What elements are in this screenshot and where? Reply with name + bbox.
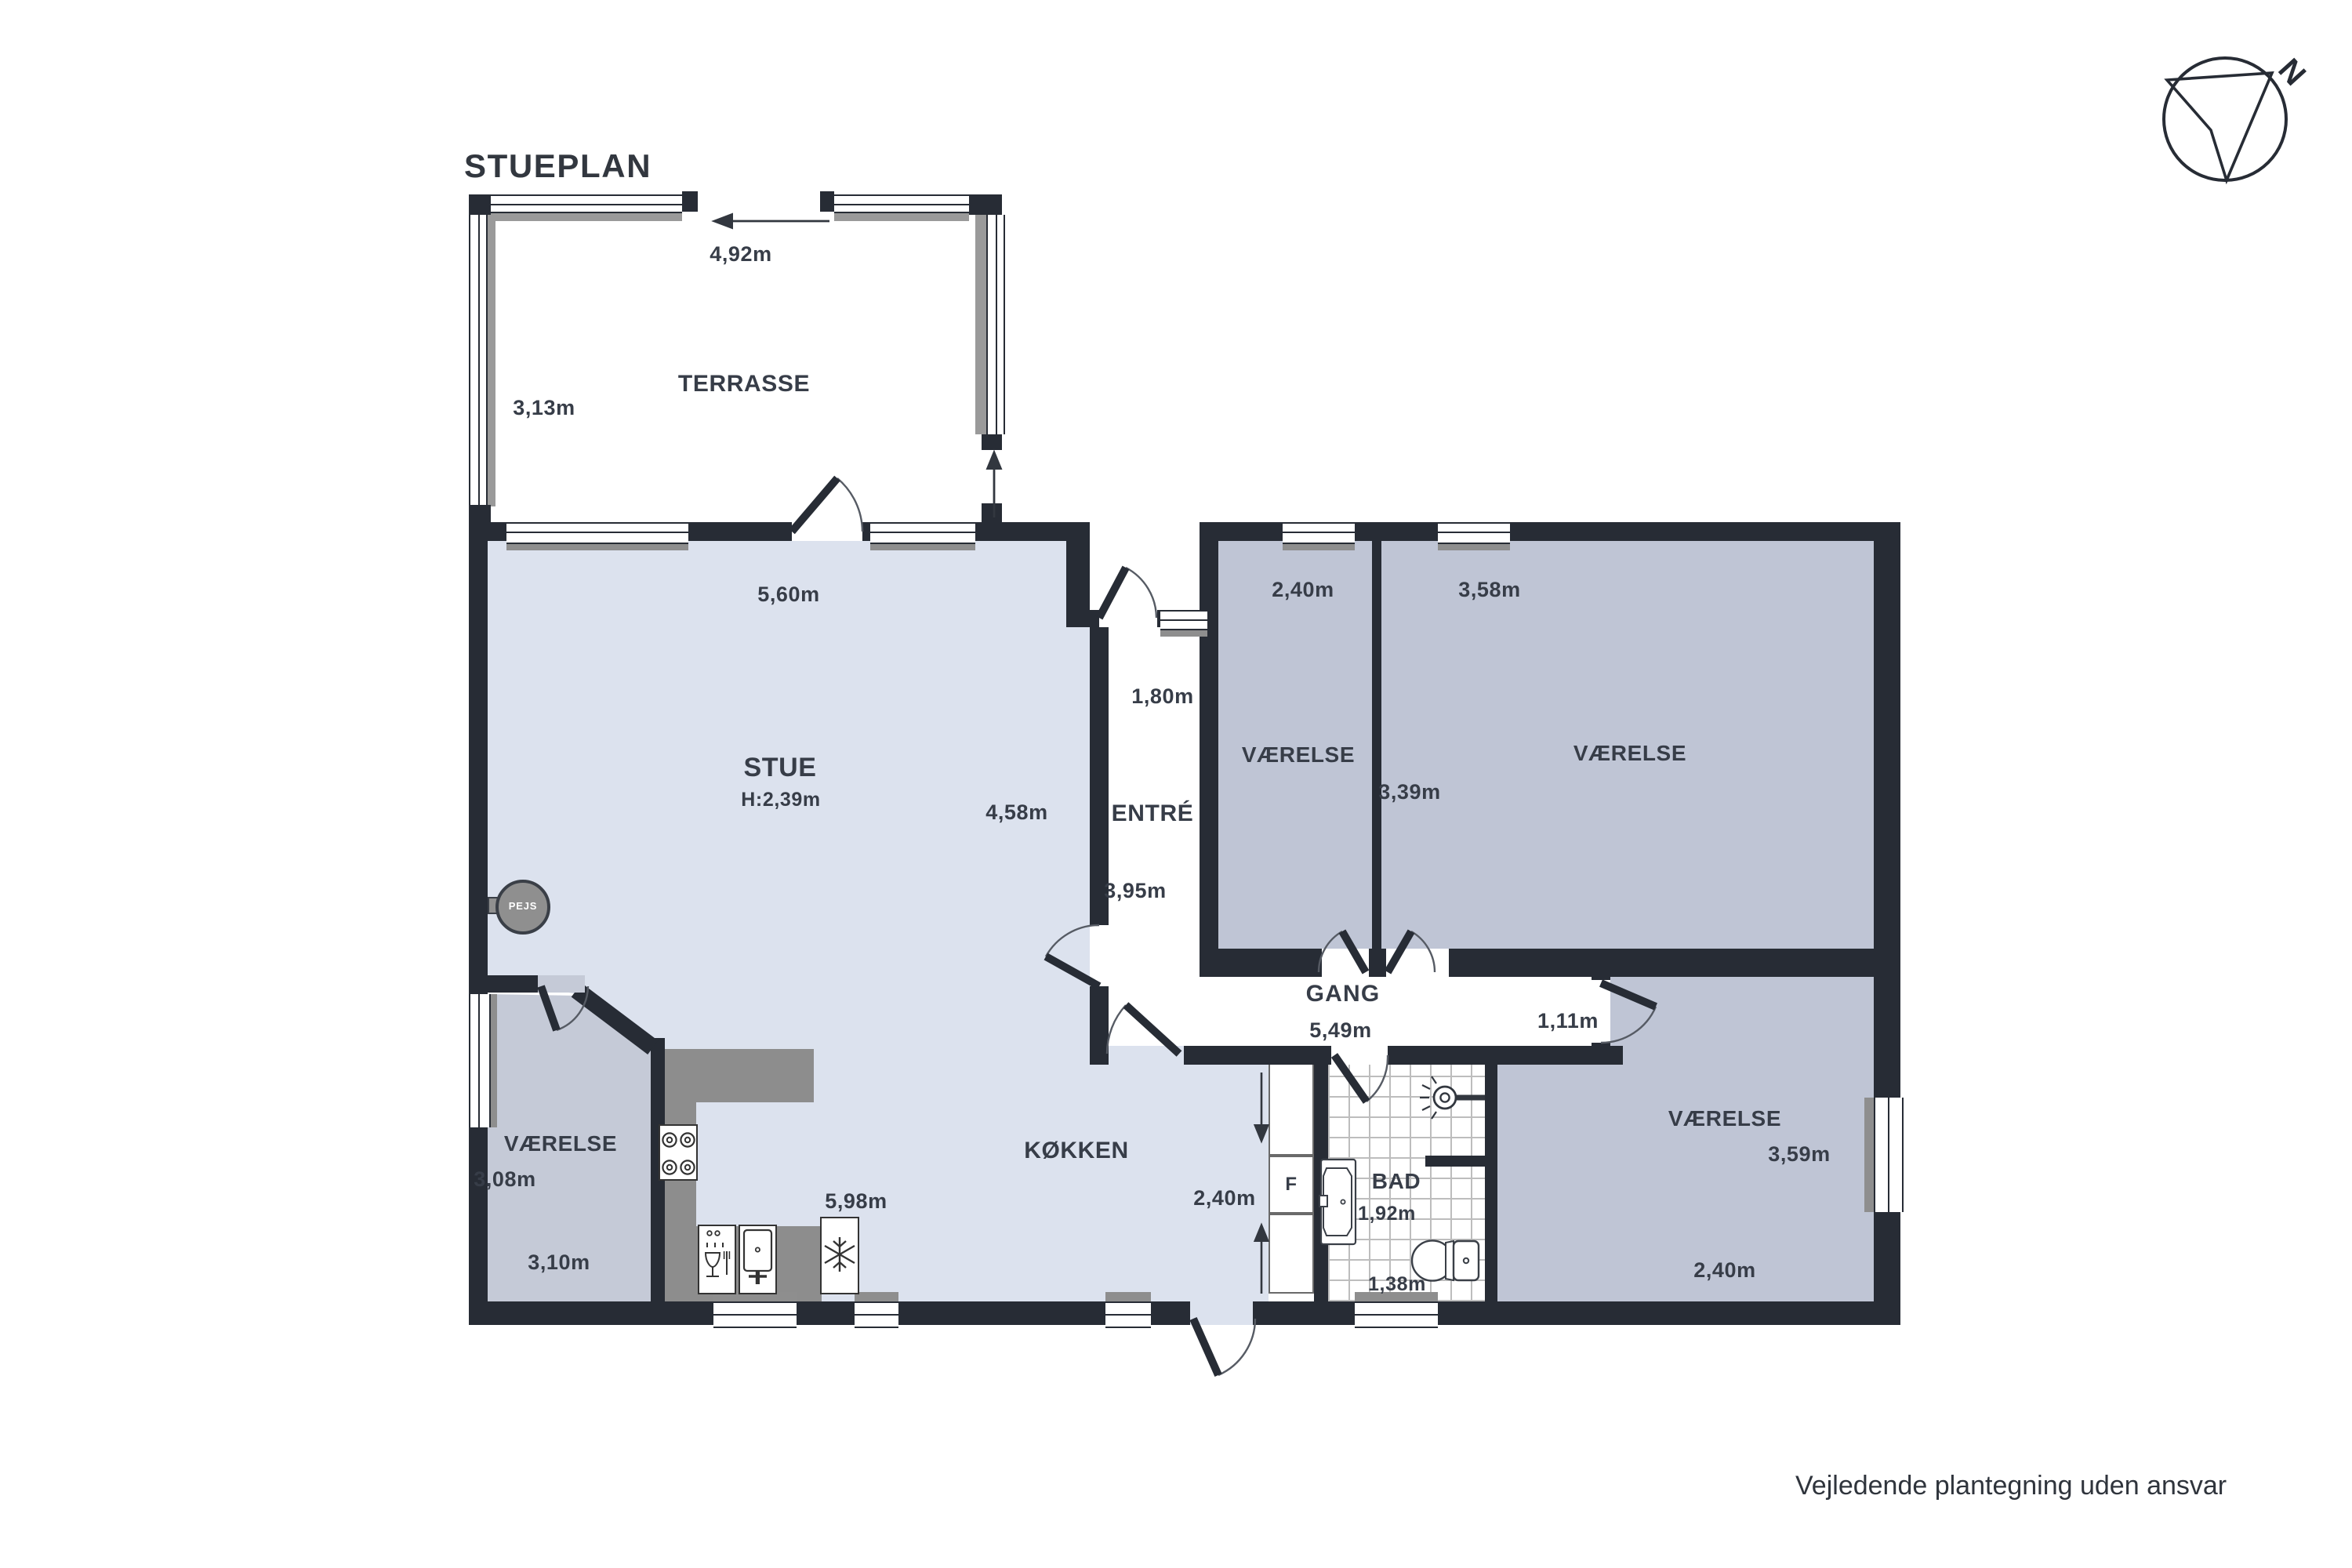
wall-left <box>469 522 487 1325</box>
compass-icon: N <box>2164 53 2312 180</box>
bad-dim-width: 1,92m <box>1358 1202 1416 1224</box>
terrasse-dim-depth: 3,13m <box>513 396 575 419</box>
stue-dim-width: 5,60m <box>757 582 820 605</box>
pejs-circle: PEJS <box>495 879 550 934</box>
window-sw <box>469 993 490 1127</box>
window-ne1 <box>1282 522 1354 543</box>
terrasse-rail-top-1 <box>489 194 682 212</box>
window-se <box>1874 1098 1903 1211</box>
vaerelse-sw-dim-width: 3,10m <box>528 1250 590 1274</box>
vaerelse-se-dim-depth: 3,59m <box>1768 1142 1831 1166</box>
terrasse-post-gap1 <box>682 191 697 212</box>
window-bottom-3-sill <box>1105 1291 1150 1301</box>
kokken-fridge-label: F <box>1285 1173 1297 1195</box>
terrasse-post-tr <box>968 194 1001 215</box>
door-gap-gang-kokken <box>1109 1045 1184 1064</box>
stue-name: STUE <box>743 753 816 784</box>
terrasse-post-tl <box>469 194 490 215</box>
window-stue-2 <box>870 522 975 543</box>
terrasse-dim-width: 4,92m <box>710 242 772 266</box>
door-gap-bad <box>1330 1045 1388 1064</box>
wall-bad-left <box>1313 1045 1327 1301</box>
door-kokken-exit-icon <box>1193 1319 1255 1375</box>
gang-dim-length: 5,49m <box>1309 1018 1372 1042</box>
window-entre <box>1160 609 1207 630</box>
terrasse-rail-left <box>469 214 488 506</box>
kokken-name: KØKKEN <box>1024 1138 1129 1164</box>
window-stue-1 <box>506 522 688 543</box>
door-gap-sw <box>537 975 584 993</box>
vaerelse-ne2-dim-width: 3,58m <box>1458 577 1521 601</box>
gang-name: GANG <box>1306 981 1381 1007</box>
door-gap-ne2 <box>1385 949 1448 976</box>
window-se-sill <box>1864 1098 1874 1211</box>
window-bottom-3 <box>1105 1301 1150 1328</box>
vaerelse-ne1-name: VÆRELSE <box>1242 741 1355 766</box>
entre-dim-width: 1,80m <box>1131 684 1194 708</box>
terrasse-post-r1 <box>982 434 1001 449</box>
wall-recess-left <box>1065 522 1090 627</box>
bad-dim-depth: 1,38m <box>1368 1273 1426 1295</box>
wall-ne1-ne2 <box>1371 540 1381 976</box>
terrasse-name: TERRASSE <box>678 371 810 397</box>
window-bottom-1 <box>713 1301 796 1328</box>
terrasse-rail-right-in <box>975 215 986 434</box>
vaerelse-se-dim-width: 2,40m <box>1693 1258 1756 1282</box>
terrasse-rail-top-2 <box>834 194 968 212</box>
vaerelse-ne1-dim-width: 2,40m <box>1272 577 1334 601</box>
terrasse-rail-right <box>986 215 1004 434</box>
wall-stue-entre-lower <box>1090 986 1109 1054</box>
compass-north-label: N <box>2271 53 2312 93</box>
kokken-dim-length: 5,98m <box>825 1189 887 1213</box>
kitchen-counter-bottom <box>665 1225 822 1301</box>
door-gap-entre-stue <box>1090 925 1109 986</box>
stue-ceiling-height: H:2,39m <box>741 789 820 811</box>
terrasse-post-bl <box>469 505 490 522</box>
wall-gang-top <box>1200 949 1874 976</box>
window-bottom-1-sill <box>713 1291 796 1301</box>
wall-bottom <box>469 1301 1900 1325</box>
window-bottom-2-sill <box>855 1291 898 1301</box>
vaerelse-se-floor <box>1610 976 1874 1301</box>
vaerelse-ne2-name: VÆRELSE <box>1573 740 1686 765</box>
window-bad <box>1355 1301 1437 1328</box>
vaerelse-sw-name: VÆRELSE <box>504 1131 617 1156</box>
vaerelse-ne2-dim-depth: 3,39m <box>1378 780 1441 804</box>
floor-plan: STUEPLAN Vejledende plantegning uden ans… <box>0 0 2352 1568</box>
kokken-dim-width: 2,40m <box>1193 1185 1256 1209</box>
terrasse-entry-arrow-icon <box>713 214 829 228</box>
wall-bad-se <box>1484 1045 1497 1301</box>
gang-dim-width: 1,11m <box>1537 1009 1599 1033</box>
terrasse-post-r2 <box>982 503 1001 540</box>
vaerelse-sw-dim-depth: 3,08m <box>474 1167 536 1190</box>
vaerelse-se-name: VÆRELSE <box>1668 1105 1781 1130</box>
entre-dim-depth: 3,95m <box>1104 879 1167 902</box>
page-title: STUEPLAN <box>464 149 652 187</box>
footer-disclaimer: Vejledende plantegning uden ansvar <box>1795 1471 2227 1502</box>
wall-sw-top <box>469 975 541 993</box>
wall-bad-halfwall <box>1425 1155 1484 1166</box>
door-gap-stue-terrasse <box>792 522 862 540</box>
kitchen-cabinet-upper <box>1269 1054 1313 1155</box>
bad-name: BAD <box>1372 1167 1421 1192</box>
pejs-label: PEJS <box>509 901 537 912</box>
kitchen-cabinet-lower <box>1269 1214 1313 1294</box>
window-bottom-2 <box>855 1301 898 1328</box>
wall-entre-ne1 <box>1200 522 1218 976</box>
stue-dim-depth: 4,58m <box>985 800 1048 824</box>
door-gap-ne1 <box>1321 949 1368 976</box>
door-gap-front <box>1099 609 1156 627</box>
terrasse-post-gap2 <box>819 191 834 212</box>
entre-name: ENTRÉ <box>1112 800 1194 827</box>
vaerelse-se-floor2 <box>1497 1064 1623 1301</box>
window-ne2 <box>1437 522 1510 543</box>
wall-sw-kokken <box>651 1038 665 1301</box>
door-gap-kokken-exit <box>1190 1301 1252 1325</box>
